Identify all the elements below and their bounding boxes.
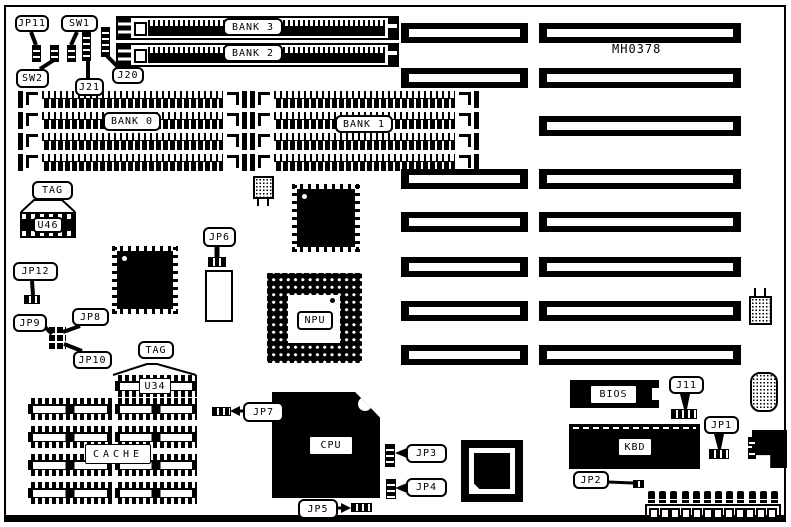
cache-chip-8 bbox=[115, 482, 197, 504]
jp9-label: JP9 bbox=[13, 314, 47, 332]
jp8-jp9-jp10-jumper-block bbox=[49, 326, 66, 349]
isa-slot-long-2 bbox=[539, 68, 741, 88]
motherboard-diagram: MH0378 U46 NPU U34 CACHE CPU B bbox=[0, 0, 791, 527]
plcc-chipset-chip bbox=[461, 440, 523, 502]
jp4-jumper bbox=[386, 479, 396, 499]
keyboard-header-1 bbox=[748, 437, 756, 446]
npu-label: NPU bbox=[297, 311, 333, 330]
pin-row bbox=[648, 500, 778, 503]
jp6-jumper bbox=[208, 257, 226, 267]
bank0-simm-slot-1 bbox=[18, 91, 247, 108]
jp12-jumper bbox=[24, 295, 40, 304]
bios-label: BIOS bbox=[590, 385, 637, 404]
jp8-label: JP8 bbox=[72, 308, 109, 326]
crystal-oscillator bbox=[253, 176, 274, 199]
bank3-label: BANK 3 bbox=[223, 18, 283, 36]
cpu-label: CPU bbox=[309, 436, 353, 455]
isa-slot-short-2 bbox=[401, 68, 528, 88]
cache-chip-1 bbox=[28, 398, 112, 420]
oscillator-socket-empty bbox=[205, 270, 233, 322]
chip-notch bbox=[652, 388, 660, 400]
qfp-controller-chip-left bbox=[112, 246, 178, 314]
slot-latch bbox=[134, 22, 147, 36]
jp4-label: JP4 bbox=[406, 478, 447, 497]
qfp-controller-chip-right bbox=[292, 184, 360, 252]
sw2-label: SW2 bbox=[16, 69, 49, 88]
isa-slot-short-4 bbox=[401, 169, 528, 189]
isa-slot-short-5 bbox=[401, 212, 528, 232]
j20-label: J20 bbox=[112, 67, 144, 84]
jp12-label: JP12 bbox=[13, 262, 58, 281]
jp7-label: JP7 bbox=[243, 402, 284, 422]
jp1-jumper bbox=[709, 449, 729, 459]
jp5-jumper bbox=[351, 503, 372, 512]
power-connector bbox=[645, 491, 781, 518]
isa-slot-long-6 bbox=[539, 257, 741, 277]
pin1-dot bbox=[330, 298, 335, 303]
pin1-dot bbox=[302, 194, 307, 199]
slot-latch bbox=[134, 49, 147, 63]
pin-row bbox=[645, 504, 781, 522]
j21-header bbox=[82, 32, 91, 61]
pin1-dot bbox=[122, 256, 127, 261]
keyboard-header-2 bbox=[748, 448, 756, 459]
speaker-connector bbox=[750, 372, 778, 412]
cache-label: CACHE bbox=[85, 444, 151, 464]
isa-slot-long-3 bbox=[539, 116, 741, 136]
jp11-jumper bbox=[32, 45, 41, 62]
jp3-label: JP3 bbox=[406, 444, 447, 463]
u34-label: U34 bbox=[139, 378, 171, 394]
sw1-switch bbox=[67, 45, 76, 62]
u46-label: U46 bbox=[33, 217, 63, 233]
isa-slot-long-7 bbox=[539, 301, 741, 321]
sw2-switch bbox=[50, 45, 59, 62]
isa-slot-short-7 bbox=[401, 301, 528, 321]
pin-row bbox=[573, 427, 696, 429]
j11-header bbox=[671, 409, 697, 419]
j21-label: J21 bbox=[75, 78, 104, 96]
tag-bottom-label: TAG bbox=[138, 341, 174, 359]
bank0-simm-slot-3 bbox=[18, 133, 247, 150]
slot-end-bracket bbox=[118, 45, 131, 65]
crystal-oscillator-2 bbox=[749, 296, 772, 325]
pin-row bbox=[648, 491, 778, 499]
j11-label: J11 bbox=[669, 376, 704, 394]
board-part-number: MH0378 bbox=[612, 42, 661, 56]
jp2-jumper bbox=[633, 480, 644, 488]
bank0-simm-slot-4 bbox=[18, 154, 247, 171]
isa-slot-long-5 bbox=[539, 212, 741, 232]
jp5-label: JP5 bbox=[298, 499, 338, 519]
isa-slot-long-4 bbox=[539, 169, 741, 189]
bank1-simm-slot-3 bbox=[250, 133, 479, 150]
isa-slot-long-1 bbox=[539, 23, 741, 43]
chip-body bbox=[474, 453, 510, 489]
bank0-label: BANK 0 bbox=[103, 112, 161, 131]
jp10-label: JP10 bbox=[73, 351, 112, 369]
j20-header bbox=[101, 27, 110, 57]
jp11-label: JP11 bbox=[15, 15, 49, 32]
cache-chip-7 bbox=[28, 482, 112, 504]
jp2-label: JP2 bbox=[573, 471, 609, 489]
bank2-label: BANK 2 bbox=[223, 44, 283, 62]
cache-chip-2 bbox=[115, 398, 197, 420]
slot-end-bracket bbox=[388, 45, 397, 65]
bank1-simm-slot-1 bbox=[250, 91, 479, 108]
sw1-label: SW1 bbox=[61, 15, 98, 32]
bank1-label: BANK 1 bbox=[335, 115, 393, 133]
slot-end-bracket bbox=[388, 18, 397, 38]
isa-slot-short-6 bbox=[401, 257, 528, 277]
jp6-label: JP6 bbox=[203, 227, 236, 247]
jp3-jumper bbox=[385, 444, 395, 467]
slot-end-bracket bbox=[118, 18, 131, 38]
isa-slot-short-8 bbox=[401, 345, 528, 365]
tag-top-label: TAG bbox=[32, 181, 73, 200]
kbd-label: KBD bbox=[618, 438, 652, 456]
jp7-jumper bbox=[212, 407, 231, 416]
isa-slot-long-8 bbox=[539, 345, 741, 365]
isa-slot-short-1 bbox=[401, 23, 528, 43]
jp1-label: JP1 bbox=[704, 416, 739, 434]
